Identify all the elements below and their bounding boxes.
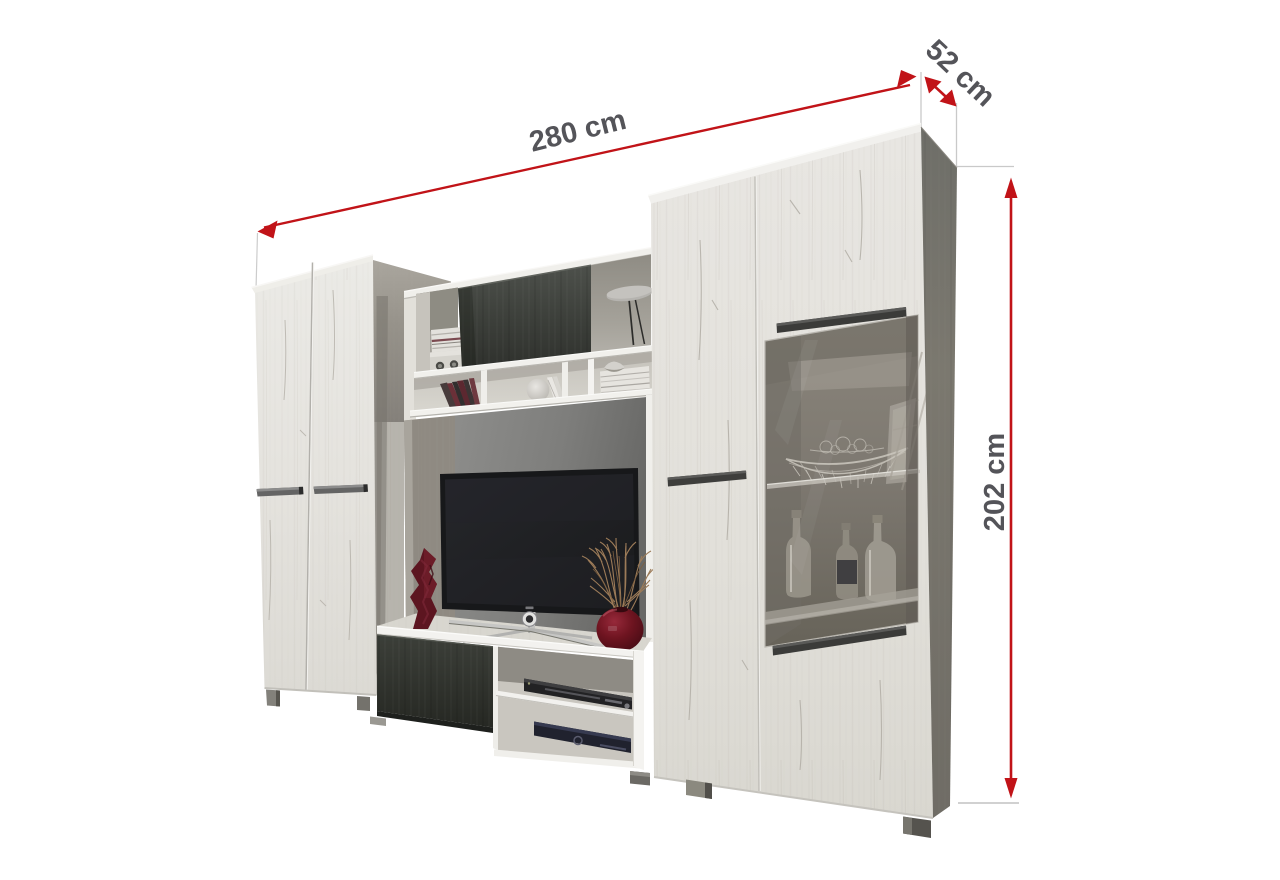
svg-text:202 cm: 202 cm [979,433,1011,531]
